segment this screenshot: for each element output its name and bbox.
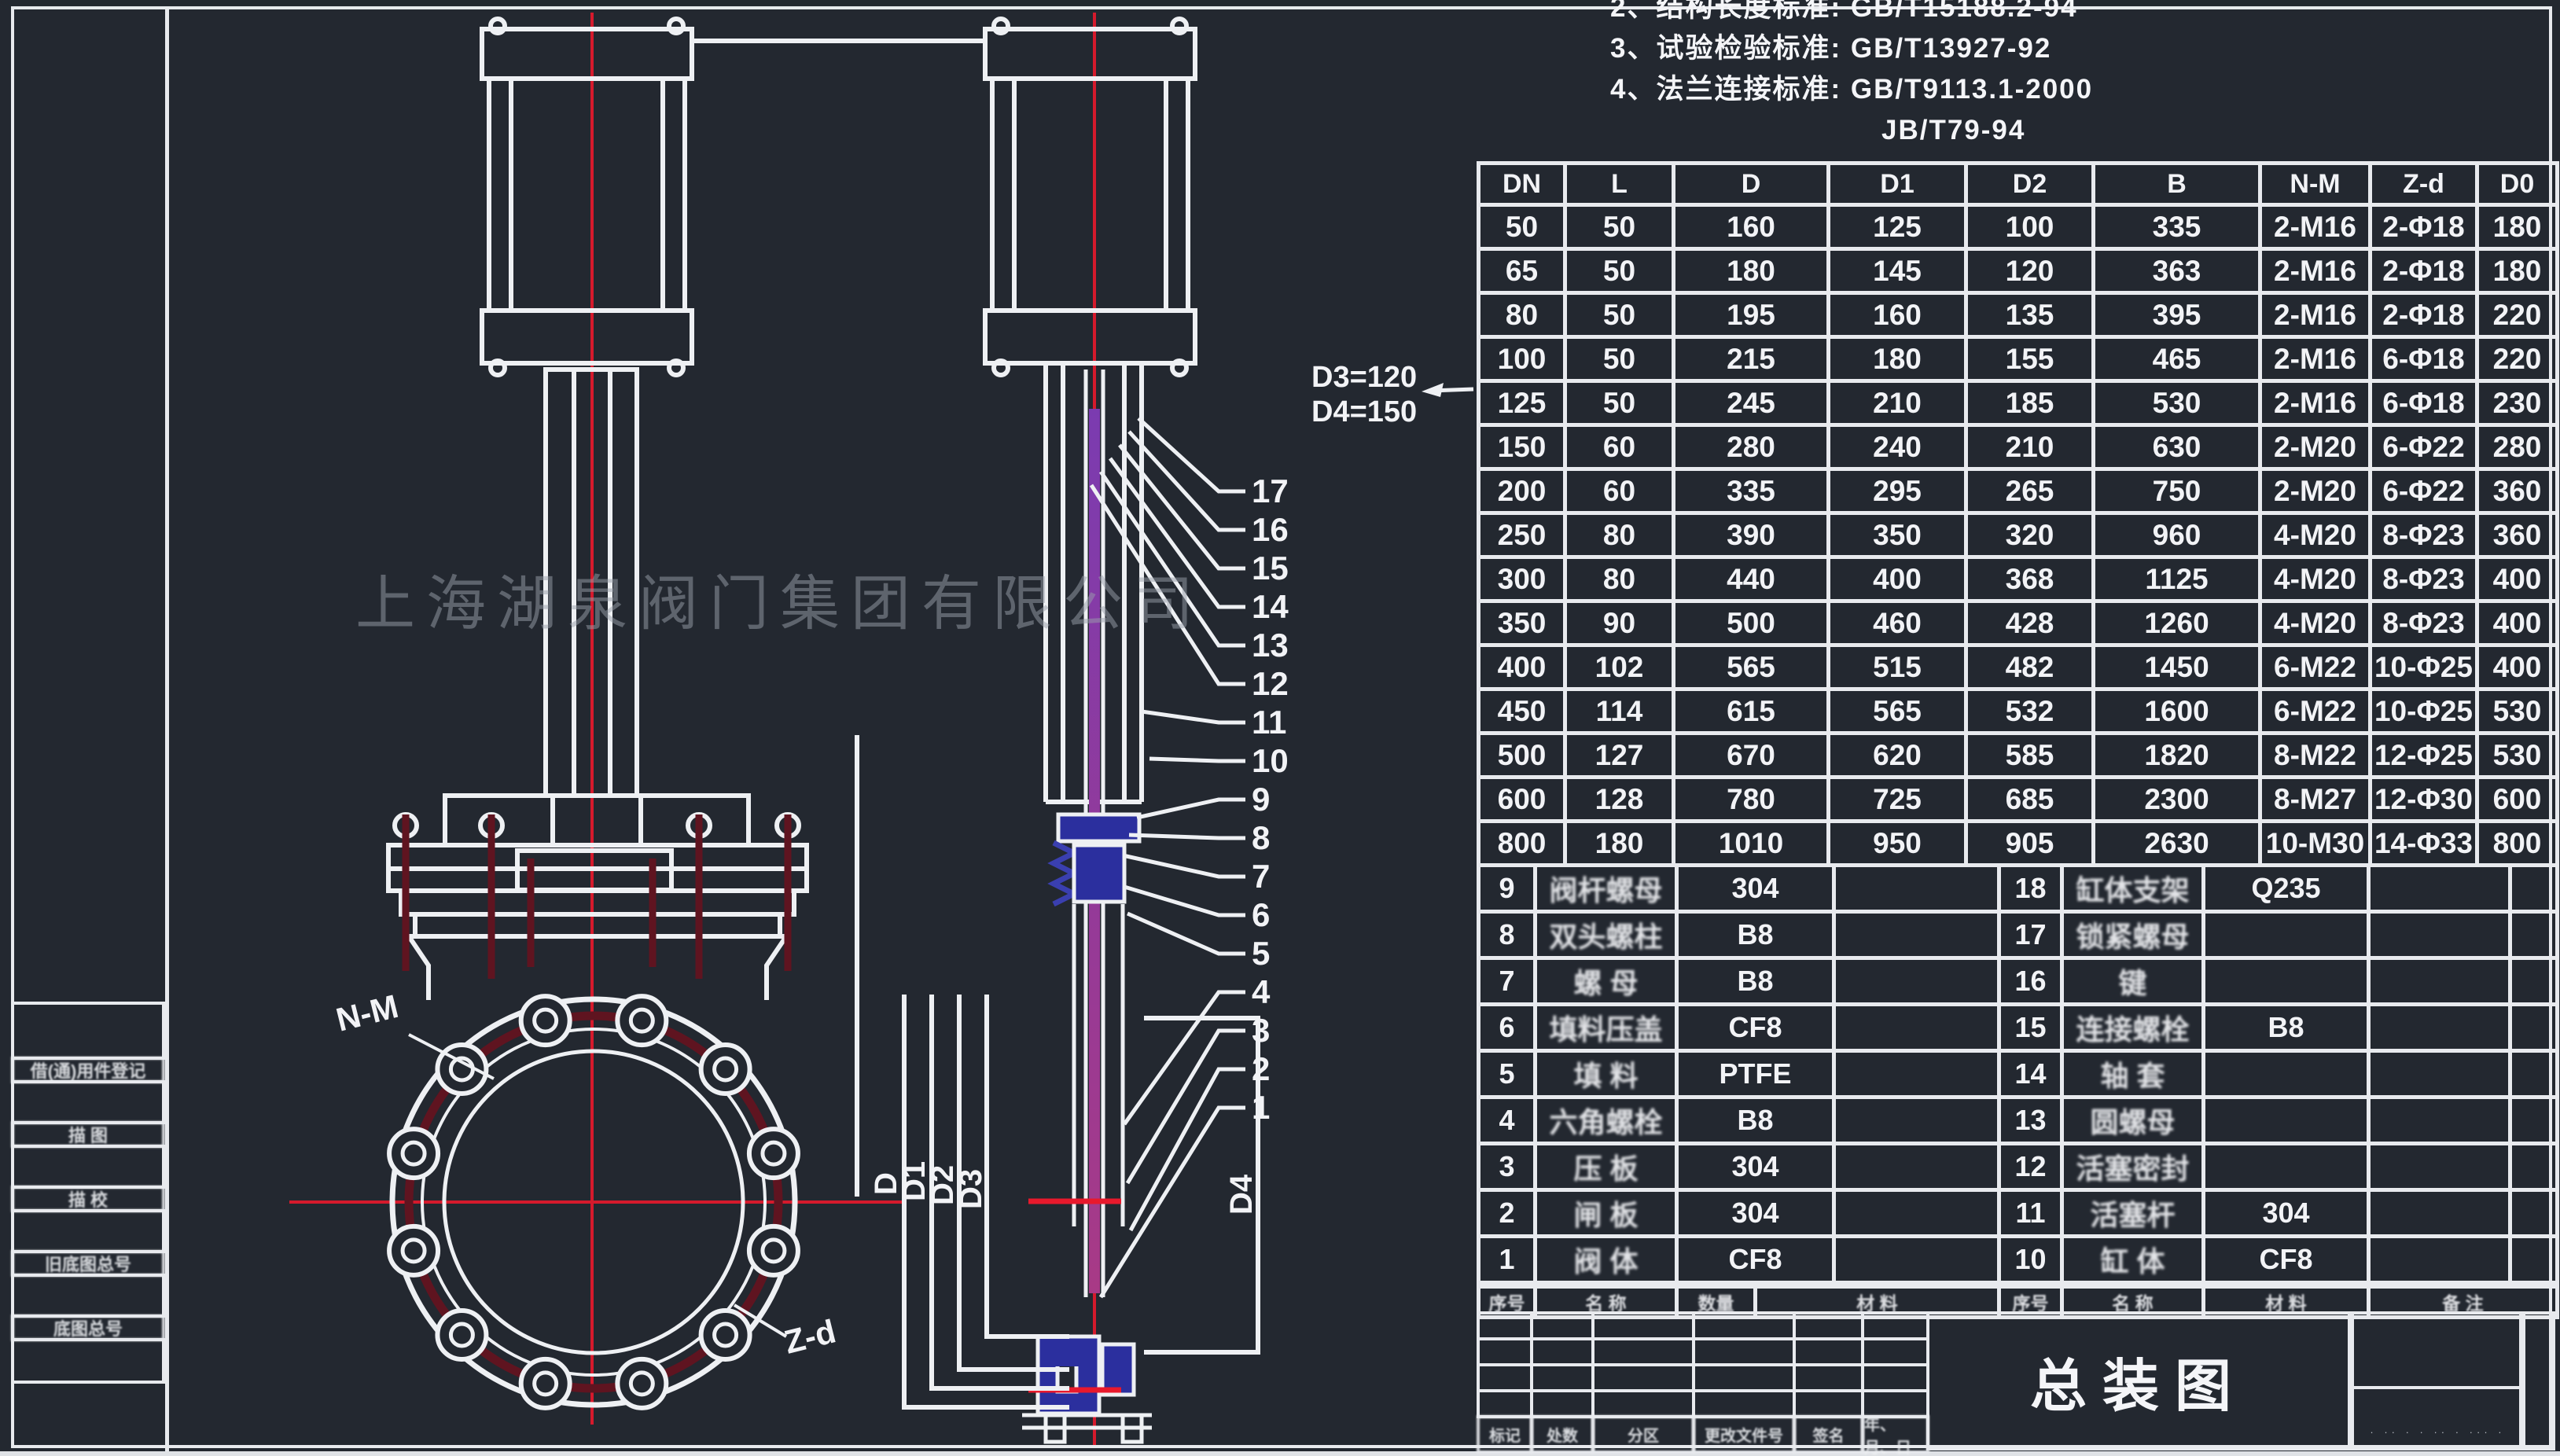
bom-material-cell [2204,958,2369,1005]
dim-row: 40010256551548214506-M2210-Φ25400 [1479,645,2558,689]
dim-cell: 6-M22 [2260,645,2371,689]
note-line: 3、试验检验标准: GB/T13927-92 [1610,28,2093,69]
note-line: 4、法兰连接标准: GB/T9113.1-2000 [1610,69,2093,110]
bom-row: 10缸 体CF8 [1999,1237,2558,1283]
title-block-right-upper [2351,1311,2522,1389]
dim-header-cell: B [2094,164,2260,205]
dim-cell: 2300 [2094,778,2260,822]
bom-empty-cell [2369,866,2510,912]
dim-header-cell: D1 [1829,164,1966,205]
dim-cell: 220 [2477,293,2558,337]
dim-cell: 6-Φ22 [2371,425,2477,469]
bom-row: 5填 料PTFE [1479,1051,1999,1098]
bom-material-cell: B8 [2204,1005,2369,1051]
dim-cell: 800 [1479,822,1565,866]
dim-row: 80501951601353952-M162-Φ18220 [1479,293,2558,337]
dim-cell: 2-Φ18 [2371,205,2477,249]
bom-empty-cell [2510,958,2558,1005]
title-block-cell [1861,1363,1929,1392]
dim-cell: 295 [1829,469,1966,513]
dim-cell: 125 [1479,381,1565,425]
dim-header-cell: DN [1479,164,1565,205]
dim-cell: 65 [1479,249,1565,293]
dim-cell: 10-Φ25 [2371,645,2477,689]
dim-cell: 90 [1565,601,1674,645]
bom-material-cell [2204,1144,2369,1190]
dim-cell: 12-Φ30 [2371,778,2477,822]
dim-cell: 230 [2477,381,2558,425]
dim-cell: 450 [1479,689,1565,734]
bom-row: 11活塞杆304 [1999,1190,2558,1237]
dim-cell: 250 [1479,513,1565,557]
dim-cell: 10-M30 [2260,822,2371,866]
sheet-inner-frame-line [165,6,169,1451]
viewport-bottom-strip [0,1451,2560,1456]
bom-no-cell: 10 [1999,1237,2062,1283]
standards-notes: 2、结构长度标准: GB/T15188.2-943、试验检验标准: GB/T13… [1610,0,2093,151]
bom-name-cell: 连接螺栓 [2062,1005,2204,1051]
dim-cell: 215 [1674,337,1829,381]
dim-cell: 600 [2477,778,2558,822]
bom-no-cell: 8 [1479,912,1536,958]
dim-cell: 360 [2477,513,2558,557]
margin-empty-box [11,1080,165,1124]
dim-cell: 2-M16 [2260,381,2371,425]
dim-cell: 100 [1966,205,2094,249]
dim-cell: 565 [1829,689,1966,734]
dimension-table: DNLDD1D2BN-MZ-dD050501601251003352-M162-… [1477,161,2559,867]
dim-row: 150602802402106302-M206-Φ22280 [1479,425,2558,469]
bom-name-cell: 螺 母 [1536,958,1677,1005]
bom-table-right: 18缸体支架Q23517锁紧螺母16键15连接螺栓B814轴 套13圆螺母12活… [1997,863,2559,1285]
title-block-cell [1477,1311,1533,1340]
bom-material-cell: Q235 [2204,866,2369,912]
dim-cell: 50 [1565,249,1674,293]
title-block-cell [1692,1363,1796,1392]
dim-cell: 350 [1829,513,1966,557]
dim-cell: 160 [1829,293,1966,337]
dim-cell: 8-M27 [2260,778,2371,822]
bom-name-cell: 填料压盖 [1536,1005,1677,1051]
dim-header-cell: N-M [2260,164,2371,205]
title-block-right-strip [2522,1311,2555,1450]
bom-name-cell: 锁紧螺母 [2062,912,2204,958]
dim-cell: 395 [2094,293,2260,337]
bom-material-cell: CF8 [1677,1237,1834,1283]
title-block-cell [1793,1389,1864,1418]
dim-cell: 100 [1479,337,1565,381]
dim-cell: 195 [1674,293,1829,337]
dim-row: 3509050046042812604-M208-Φ23400 [1479,601,2558,645]
dim-cell: 180 [1565,822,1674,866]
margin-label-box: 旧底图总号 [11,1250,165,1277]
dim-cell: 400 [1829,557,1966,601]
bom-empty-cell [2510,912,2558,958]
margin-empty-box [11,1002,165,1060]
dim-cell: 60 [1565,469,1674,513]
bom-empty-cell [2510,1005,2558,1051]
bom-empty-cell [1834,1190,1999,1237]
dim-cell: 615 [1674,689,1829,734]
bom-row: 6填料压盖CF8 [1479,1005,1999,1051]
dim-cell: 368 [1966,557,2094,601]
margin-empty-box [11,1209,165,1253]
dim-row: 200603352952657502-M206-Φ22360 [1479,469,2558,513]
dim-cell: 670 [1674,734,1829,778]
note-line: 2、结构长度标准: GB/T15188.2-94 [1610,0,2093,28]
dim-cell: 1600 [2094,689,2260,734]
bom-empty-cell [2510,1051,2558,1098]
bom-no-cell: 13 [1999,1098,2062,1144]
bom-empty-cell [2510,1237,2558,1283]
dim-cell: 180 [2477,205,2558,249]
dim-row: 65501801451203632-M162-Φ18180 [1479,249,2558,293]
bom-empty-cell [1834,1237,1999,1283]
dim-header-cell: D [1674,164,1829,205]
title-block-micro-text: · ·· · · ·· · ··· · [2357,1426,2518,1438]
bom-empty-cell [2369,1005,2510,1051]
dim-cell: 280 [1674,425,1829,469]
dim-cell: 530 [2477,734,2558,778]
dim-cell: 2630 [2094,822,2260,866]
bom-no-cell: 16 [1999,958,2062,1005]
dim-cell: 80 [1479,293,1565,337]
title-block-cell [1793,1311,1864,1340]
dim-cell: 160 [1674,205,1829,249]
bom-name-cell: 双头螺柱 [1536,912,1677,958]
bom-empty-cell [2369,1098,2510,1144]
dim-cell: 960 [2094,513,2260,557]
dim-cell: 12-Φ25 [2371,734,2477,778]
bom-empty-cell [1834,958,1999,1005]
dim-cell: 2-M20 [2260,425,2371,469]
dim-cell: 2-Φ18 [2371,249,2477,293]
bom-name-cell: 圆螺母 [2062,1098,2204,1144]
dim-cell: 482 [1966,645,2094,689]
drawing-title: 总装图 [2030,1340,2247,1422]
dim-cell: 280 [2477,425,2558,469]
dim-cell: 630 [2094,425,2260,469]
bom-row: 1阀 体CF8 [1479,1237,1999,1283]
bom-table-left: 9阀杆螺母3048双头螺柱B87螺 母B86填料压盖CF85填 料PTFE4六角… [1477,863,2001,1285]
title-block-cell [1692,1389,1796,1418]
bom-no-cell: 12 [1999,1144,2062,1190]
title-block-cell: 更改文件号 [1692,1415,1796,1454]
dim-row: 3008044040036811254-M208-Φ23400 [1479,557,2558,601]
dim-cell: 8-Φ23 [2371,557,2477,601]
bom-material-cell: B8 [1677,1098,1834,1144]
dim-cell: 125 [1829,205,1966,249]
bom-row: 15连接螺栓B8 [1999,1005,2558,1051]
dim-cell: 80 [1565,513,1674,557]
bom-row: 17锁紧螺母 [1999,912,2558,958]
margin-label-box: 借(通)用件登记 [11,1057,165,1083]
bom-row: 4六角螺栓B8 [1479,1098,1999,1144]
bom-row: 14轴 套 [1999,1051,2558,1098]
dim-header-cell: D0 [2477,164,2558,205]
dim-cell: 1125 [2094,557,2260,601]
dim-cell: 400 [1479,645,1565,689]
dim-row: 8001801010950905263010-M3014-Φ33800 [1479,822,2558,866]
bom-empty-cell [1834,1005,1999,1051]
dim-cell: 500 [1479,734,1565,778]
dim-cell: 4-M20 [2260,513,2371,557]
bom-empty-cell [2369,1144,2510,1190]
dim-cell: 460 [1829,601,1966,645]
title-block-cell [1591,1337,1695,1366]
dim-cell: 400 [2477,557,2558,601]
dim-cell: 360 [2477,469,2558,513]
dim-cell: 245 [1674,381,1829,425]
dim-cell: 2-M16 [2260,337,2371,381]
dim-cell: 800 [2477,822,2558,866]
title-block-cell: 处数 [1530,1415,1594,1454]
dim-cell: 150 [1479,425,1565,469]
bom-no-cell: 17 [1999,912,2062,958]
cad-drawing-sheet: N-M Z-d [0,0,2560,1456]
margin-empty-box [11,1145,165,1189]
bom-name-cell: 活塞杆 [2062,1190,2204,1237]
dim-row: 125502452101855302-M166-Φ18230 [1479,381,2558,425]
title-block-cell [1591,1363,1695,1392]
dim-cell: 50 [1565,337,1674,381]
title-block-cell [1692,1311,1796,1340]
dim-cell: 515 [1829,645,1966,689]
dim-row: 250803903503209604-M208-Φ23360 [1479,513,2558,557]
dim-cell: 180 [1674,249,1829,293]
dim-cell: 750 [2094,469,2260,513]
bom-name-cell: 六角螺栓 [1536,1098,1677,1144]
bom-no-cell: 2 [1479,1190,1536,1237]
bom-empty-cell [1834,866,1999,912]
title-block-cell [1591,1311,1695,1340]
title-block-cell: 分区 [1591,1415,1695,1454]
bom-empty-cell [2369,1190,2510,1237]
bom-no-cell: 1 [1479,1237,1536,1283]
dim-cell: 600 [1479,778,1565,822]
bom-name-cell: 缸体支架 [2062,866,2204,912]
dim-cell: 210 [1966,425,2094,469]
title-block-cell [1477,1389,1533,1418]
dim-cell: 200 [1479,469,1565,513]
dim-cell: 500 [1674,601,1829,645]
margin-label-box: 描 图 [11,1121,165,1148]
dim-cell: 180 [2477,249,2558,293]
bom-empty-cell [2510,1098,2558,1144]
dim-cell: 240 [1829,425,1966,469]
dim-cell: 180 [1829,337,1966,381]
dim-cell: 6-Φ22 [2371,469,2477,513]
title-block-cell: 年、月、日 [1861,1415,1929,1454]
dim-cell: 145 [1829,249,1966,293]
bom-no-cell: 18 [1999,866,2062,912]
title-block-cell [1692,1337,1796,1366]
bom-empty-cell [1834,912,1999,958]
title-block-cell [1793,1363,1864,1392]
dim-cell: 210 [1829,381,1966,425]
dim-cell: 725 [1829,778,1966,822]
dim-cell: 400 [2477,645,2558,689]
margin-empty-box [11,1338,165,1384]
bom-no-cell: 15 [1999,1005,2062,1051]
dim-cell: 4-M20 [2260,601,2371,645]
bom-empty-cell [2510,866,2558,912]
bom-row: 16键 [1999,958,2558,1005]
title-block-cell [1530,1389,1594,1418]
dim-cell: 335 [2094,205,2260,249]
bom-row: 8双头螺柱B8 [1479,912,1999,958]
dim-cell: 300 [1479,557,1565,601]
dim-cell: 135 [1966,293,2094,337]
drawing-title-cell: 总装图 [1926,1311,2351,1450]
title-block-cell: 标记 [1477,1415,1533,1454]
margin-label-box: 描 校 [11,1186,165,1212]
bom-row: 18缸体支架Q235 [1999,866,2558,912]
dim-cell: 2-M16 [2260,249,2371,293]
dim-header-cell: Z-d [2371,164,2477,205]
bom-name-cell: 填 料 [1536,1051,1677,1098]
dim-cell: 400 [2477,601,2558,645]
dim-cell: 428 [1966,601,2094,645]
bom-name-cell: 活塞密封 [2062,1144,2204,1190]
dim-cell: 128 [1565,778,1674,822]
dim-cell: 6-Φ18 [2371,337,2477,381]
bom-material-cell: 304 [1677,1144,1834,1190]
dim-cell: 390 [1674,513,1829,557]
bom-empty-cell [2510,1144,2558,1190]
title-block-cell [1591,1389,1695,1418]
dim-cell: 1260 [2094,601,2260,645]
dim-header-cell: D2 [1966,164,2094,205]
dim-cell: 950 [1829,822,1966,866]
dim-cell: 4-M20 [2260,557,2371,601]
title-block-cell [1530,1363,1594,1392]
dim-cell: 8-Φ23 [2371,601,2477,645]
dim-cell: 620 [1829,734,1966,778]
bom-empty-cell [1834,1144,1999,1190]
bom-empty-cell [2510,1190,2558,1237]
bom-no-cell: 6 [1479,1005,1536,1051]
bom-no-cell: 4 [1479,1098,1536,1144]
dim-row: 50501601251003352-M162-Φ18180 [1479,205,2558,249]
dim-cell: 6-Φ18 [2371,381,2477,425]
dim-cell: 585 [1966,734,2094,778]
bom-empty-cell [2369,958,2510,1005]
dim-cell: 530 [2477,689,2558,734]
dim-header-cell: L [1565,164,1674,205]
bom-material-cell: B8 [1677,912,1834,958]
dim-cell: 60 [1565,425,1674,469]
dim-cell: 127 [1565,734,1674,778]
bom-empty-cell [2369,912,2510,958]
dim-cell: 2-Φ18 [2371,293,2477,337]
dim-cell: 8-M22 [2260,734,2371,778]
bom-row: 7螺 母B8 [1479,958,1999,1005]
note-line: JB/T79-94 [1610,110,2093,151]
bom-empty-cell [1834,1051,1999,1098]
dim-cell: 185 [1966,381,2094,425]
title-block-cell [1530,1311,1594,1340]
dim-cell: 6-M22 [2260,689,2371,734]
bom-material-cell: 304 [1677,866,1834,912]
dim-cell: 1450 [2094,645,2260,689]
dim-cell: 120 [1966,249,2094,293]
bom-row: 2闸 板304 [1479,1190,1999,1237]
dim-cell: 530 [2094,381,2260,425]
dim-cell: 102 [1565,645,1674,689]
dim-cell: 14-Φ33 [2371,822,2477,866]
dim-cell: 565 [1674,645,1829,689]
dim-cell: 265 [1966,469,2094,513]
bom-no-cell: 5 [1479,1051,1536,1098]
dim-cell: 2-M16 [2260,205,2371,249]
bom-no-cell: 11 [1999,1190,2062,1237]
bom-no-cell: 14 [1999,1051,2062,1098]
bom-material-cell: CF8 [1677,1005,1834,1051]
bom-material-cell: 304 [1677,1190,1834,1237]
dim-cell: 50 [1565,293,1674,337]
dim-cell: 80 [1565,557,1674,601]
bom-material-cell: 304 [2204,1190,2369,1237]
dim-cell: 50 [1479,205,1565,249]
dim-cell: 532 [1966,689,2094,734]
bom-empty-cell [2369,1237,2510,1283]
bom-name-cell: 键 [2062,958,2204,1005]
bom-name-cell: 阀杆螺母 [1536,866,1677,912]
title-block-cell [1530,1337,1594,1366]
dim-cell: 905 [1966,822,2094,866]
bom-material-cell: B8 [1677,958,1834,1005]
dim-cell: 114 [1565,689,1674,734]
bom-name-cell: 压 板 [1536,1144,1677,1190]
dim-cell: 50 [1565,205,1674,249]
dim-cell: 10-Φ25 [2371,689,2477,734]
bom-material-cell [2204,912,2369,958]
bom-material-cell: PTFE [1677,1051,1834,1098]
bom-row: 12活塞密封 [1999,1144,2558,1190]
bom-name-cell: 轴 套 [2062,1051,2204,1098]
bom-empty-cell [1834,1098,1999,1144]
dim-cell: 155 [1966,337,2094,381]
dim-cell: 465 [2094,337,2260,381]
margin-label-box: 底图总号 [11,1314,165,1341]
title-block-cell [1861,1337,1929,1366]
dim-cell: 440 [1674,557,1829,601]
dim-cell: 350 [1479,601,1565,645]
title-block-cell [1793,1337,1864,1366]
dim-row: 60012878072568523008-M2712-Φ30600 [1479,778,2558,822]
bom-row: 9阀杆螺母304 [1479,866,1999,912]
bom-material-cell [2204,1098,2369,1144]
dim-cell: 1010 [1674,822,1829,866]
title-block-cell [1477,1337,1533,1366]
bom-no-cell: 3 [1479,1144,1536,1190]
title-block-right-lower [2351,1386,2522,1450]
title-block-cell [1861,1311,1929,1340]
margin-empty-box [11,1274,165,1318]
dim-row: 50012767062058518208-M2212-Φ25530 [1479,734,2558,778]
dim-cell: 2-M20 [2260,469,2371,513]
bom-name-cell: 闸 板 [1536,1190,1677,1237]
dim-cell: 363 [2094,249,2260,293]
margin-label-boxes: 借(通)用件登记描 图描 校旧底图总号底图总号 [11,1005,165,1384]
dim-cell: 8-Φ23 [2371,513,2477,557]
bom-material-cell: CF8 [2204,1237,2369,1283]
title-block-cell: 签名 [1793,1415,1864,1454]
dim-cell: 220 [2477,337,2558,381]
title-block-cell [1477,1363,1533,1392]
bom-row: 13圆螺母 [1999,1098,2558,1144]
